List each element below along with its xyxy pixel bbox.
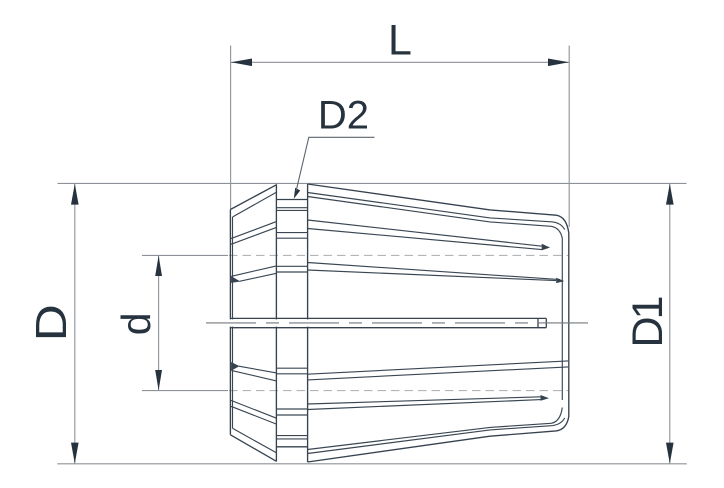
svg-text:L: L (388, 17, 412, 65)
svg-text:D2: D2 (318, 93, 369, 137)
svg-text:d: d (113, 312, 159, 335)
svg-text:D1: D1 (624, 297, 672, 347)
svg-text:D: D (28, 304, 77, 341)
